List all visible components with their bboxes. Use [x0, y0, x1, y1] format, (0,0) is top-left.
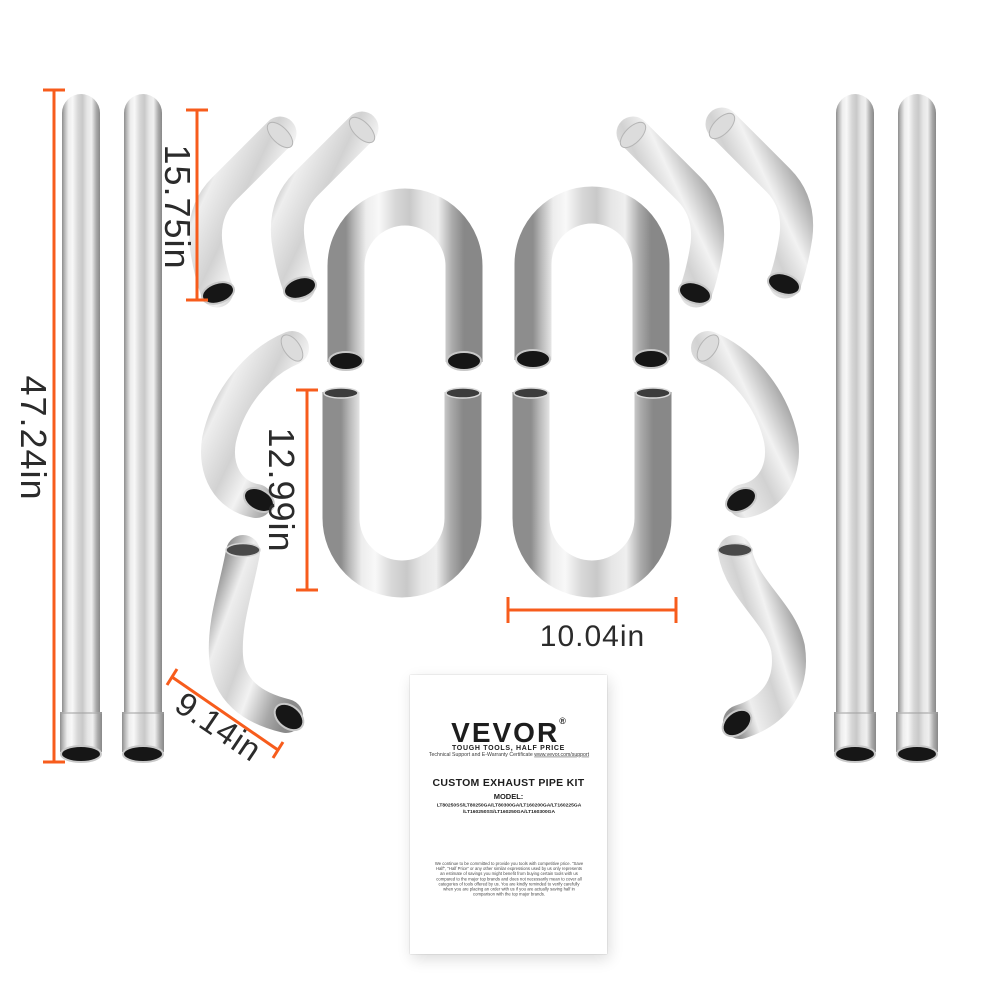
support-url: www.vevor.com/support	[534, 752, 589, 758]
model-line-2: /LT160250SS/LT160250GA/LT160300GA	[436, 808, 581, 814]
elbow-90-pipe-4	[718, 544, 789, 742]
elbow-45-pipe-4	[705, 109, 803, 299]
disclaimer-text: We continue to be committed to provide y…	[434, 861, 584, 897]
support-line: Technical Support and E-Warranty Certifi…	[428, 752, 588, 758]
u-bend-pipe-3	[324, 388, 480, 579]
registered-mark: ®	[559, 716, 566, 726]
u-bend-pipe-1	[329, 207, 481, 370]
elbow-90-pipe-3	[693, 331, 782, 517]
model-numbers: LT80250SS/LT80250GA/LT80300GA/LT160200GA…	[436, 802, 581, 815]
straight-pipe-right-2	[896, 94, 938, 762]
dimension-label-u-bend-height: 12.99in	[260, 425, 302, 555]
brand-name: VEVOR	[451, 717, 559, 748]
product-image: 47.24in 15.75in 12.99in 10.04in 9.14in V…	[0, 0, 1000, 1000]
u-bend-pipe-2	[516, 205, 668, 368]
model-label: MODEL:	[410, 792, 607, 801]
dimension-label-u-bend-width: 10.04in	[520, 620, 665, 654]
u-bend-pipe-4	[514, 388, 670, 579]
straight-pipe-right-1	[834, 94, 876, 762]
elbow-90-pipe-2	[226, 544, 309, 736]
straight-pipe-left-1	[60, 94, 102, 762]
brand-logo: VEVOR®	[410, 717, 607, 747]
support-text: Technical Support and E-Warranty Certifi…	[428, 752, 533, 758]
product-title: CUSTOM EXHAUST PIPE KIT	[410, 777, 607, 789]
dimension-label-45-elbow: 15.75in	[156, 142, 198, 272]
product-info-card: VEVOR® TOUGH TOOLS, HALF PRICE Technical…	[410, 675, 607, 954]
dimension-label-straight-pipe: 47.24in	[12, 372, 54, 504]
brand-tagline: TOUGH TOOLS, HALF PRICE	[410, 745, 607, 752]
model-line-1: LT80250SS/LT80250GA/LT80300GA/LT160200GA…	[436, 802, 581, 808]
